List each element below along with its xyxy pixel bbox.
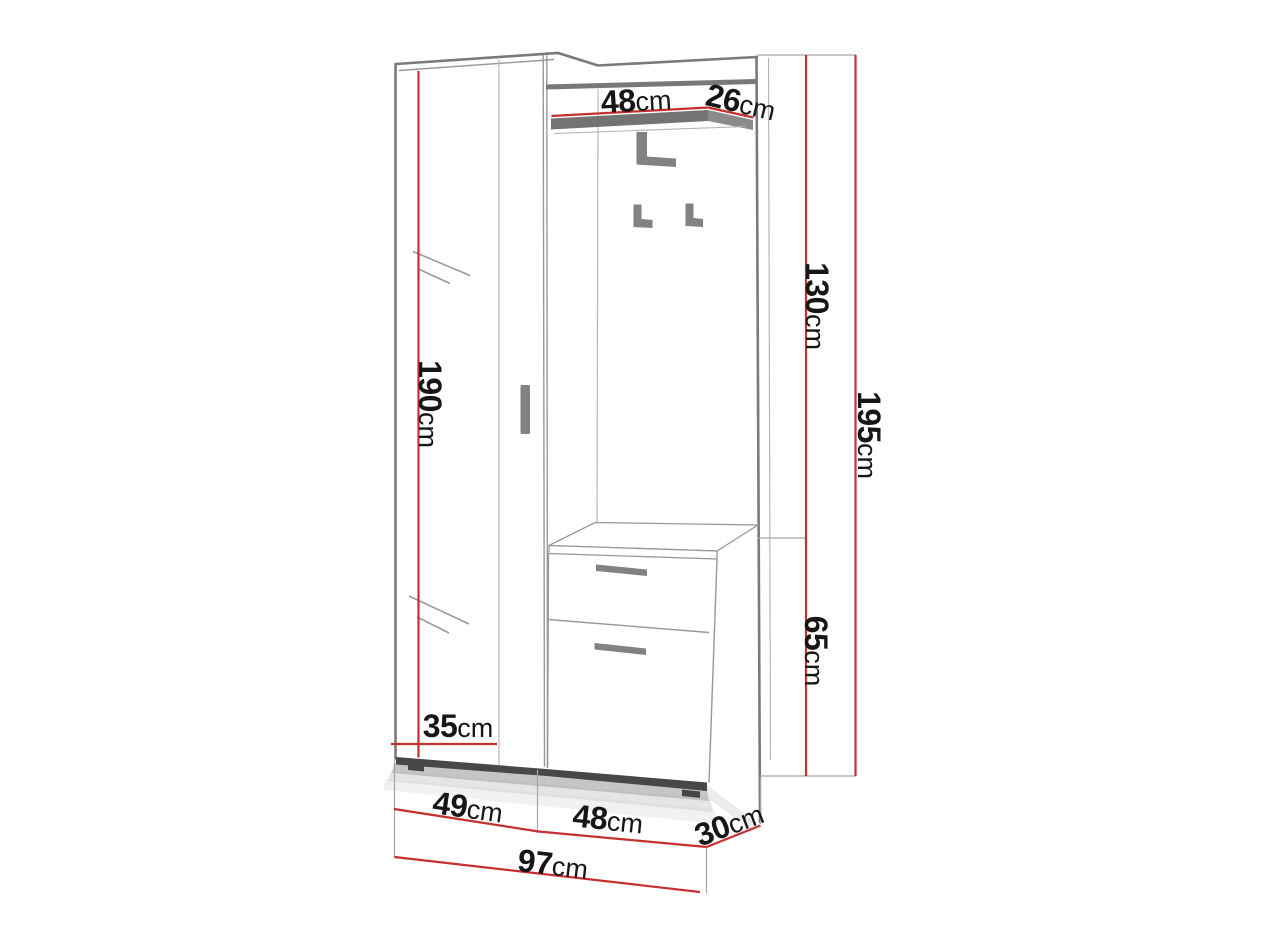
shoe-cabinet: [548, 523, 759, 783]
dimension-label-total-width: 97cm: [516, 842, 590, 886]
side-panel-back-edge: [769, 58, 771, 760]
mirror-hatch-1: [413, 252, 470, 276]
dimension-label-cabinet-height: 65cm: [798, 616, 834, 687]
mirror-hatch-4: [417, 617, 449, 633]
drawer-handle: [596, 565, 647, 577]
side-panel-front-edge: [757, 57, 761, 822]
wardrobe-door-handle: [521, 385, 531, 434]
cabinet-door-handle: [595, 643, 647, 655]
mirror-hatch-2: [420, 270, 451, 284]
top-outline: [396, 53, 757, 66]
dimension-label-wardrobe-height: 190cm: [412, 360, 448, 448]
dimension-label-wardrobe-depth: 35cm: [423, 708, 494, 744]
cabinet-right-edge: [709, 559, 717, 783]
cabinet-left-edge: [548, 554, 549, 769]
dimension-label-total-height: 195cm: [851, 391, 887, 479]
drawer-door-separator: [548, 620, 709, 633]
dimension-label-hook-panel-height: 130cm: [799, 262, 835, 350]
furniture-dimension-diagram: 48cm 26cm 130cm 195cm 190cm 65cm 35cm 49…: [0, 0, 1266, 949]
wardrobe-door-edge: [543, 55, 544, 767]
coat-hook-small-left-icon: [634, 205, 653, 229]
hook-panel-left-edge: [597, 89, 598, 523]
wardrobe-left: [396, 53, 758, 767]
coat-hook-large-icon: [637, 132, 677, 167]
coat-hook-small-right-icon: [686, 204, 704, 228]
